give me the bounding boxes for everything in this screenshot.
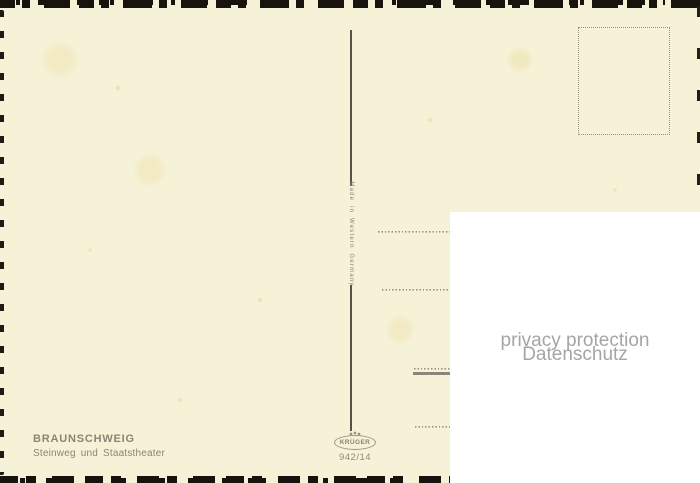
address-line-4: [415, 426, 452, 428]
scan-artifact-left-edge: [0, 10, 4, 475]
scan-artifact-bottom-edge: [0, 475, 455, 483]
scan-artifact-top-edge: [0, 0, 700, 9]
privacy-text-de: Datenschutz: [522, 348, 628, 362]
address-line-1: [378, 231, 452, 233]
made-in-text: Made in Western Germany: [348, 181, 354, 286]
publisher-logo: KRÜGER: [334, 435, 376, 450]
divider-line-lower: [350, 285, 352, 431]
address-line-2: [382, 289, 452, 291]
view-subtitle: Steinweg und Staatstheater: [33, 448, 165, 459]
privacy-overlay: privacy protection Datenschutz: [450, 212, 700, 483]
caption-block: BRAUNSCHWEIG Steinweg und Staatstheater: [33, 433, 165, 459]
city-title: BRAUNSCHWEIG: [33, 433, 165, 445]
divider-line-upper: [350, 30, 352, 186]
card-number: 942/14: [334, 452, 376, 463]
publisher-block: KRÜGER 942/14: [334, 431, 376, 463]
postcard-back: Made in Western Germany BRAUNSCHWEIG Ste…: [0, 0, 700, 483]
address-line-3: [414, 368, 452, 370]
address-line-3-underline: [413, 372, 452, 375]
stamp-box: [578, 27, 670, 135]
